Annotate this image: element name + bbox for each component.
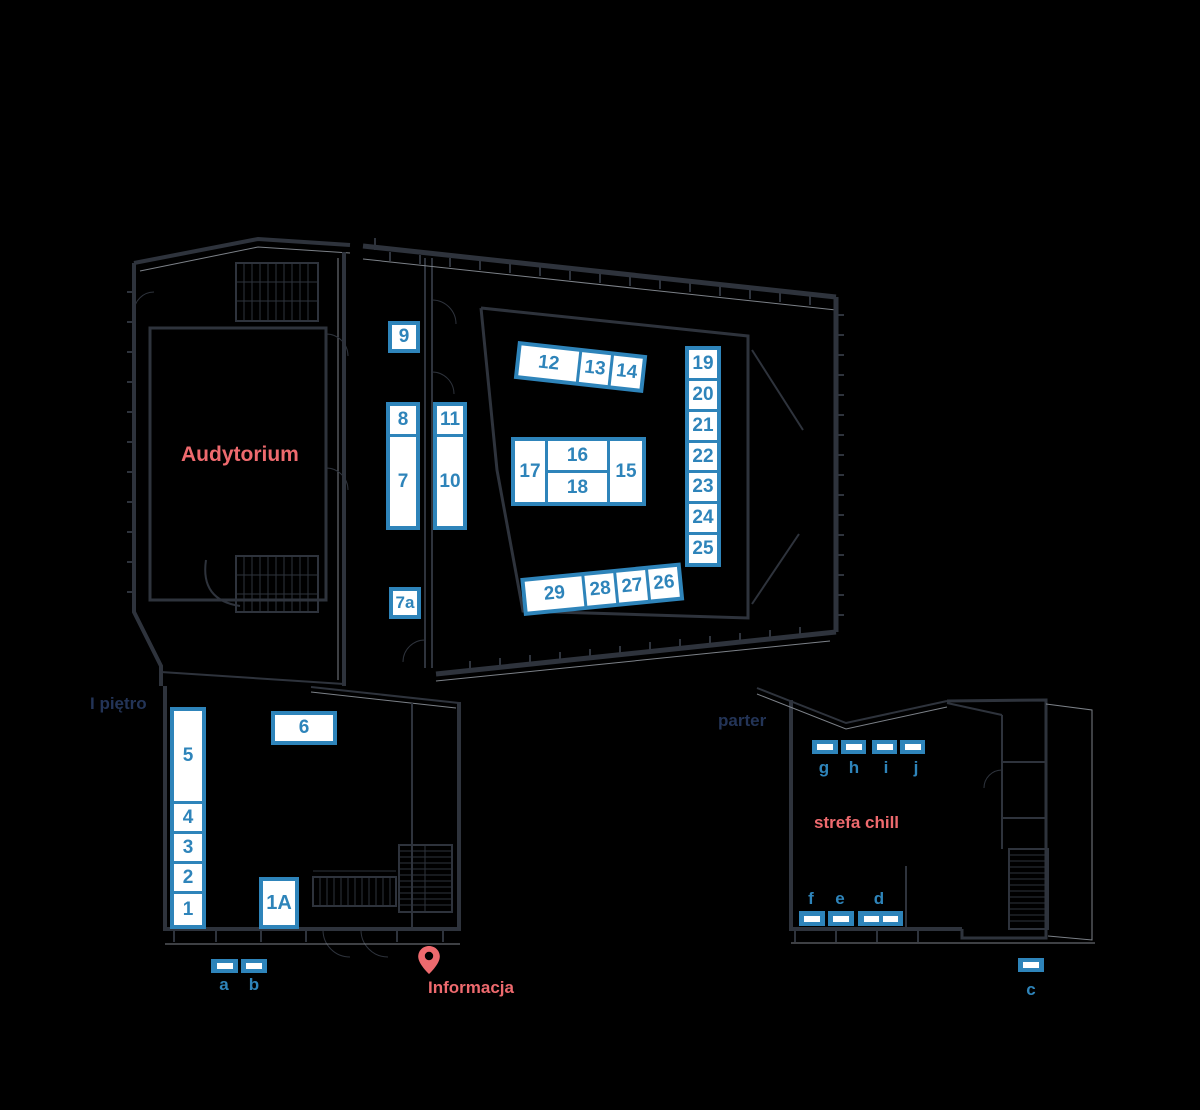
stand-3[interactable]: 3 xyxy=(174,834,202,861)
slot-window xyxy=(217,963,233,969)
stand-h-box[interactable] xyxy=(841,740,866,754)
stand-27[interactable]: 27 xyxy=(616,570,648,603)
slot-window xyxy=(846,744,862,750)
stand-11[interactable]: 11 xyxy=(437,406,463,434)
stand-j-label: j xyxy=(914,758,919,778)
stand-a-box[interactable] xyxy=(211,959,238,973)
floor-plan-drawing xyxy=(0,0,1200,1110)
stand-13[interactable]: 13 xyxy=(579,352,611,385)
stand-middle-column: 16 18 xyxy=(548,441,607,502)
stand-6[interactable]: 6 xyxy=(271,711,337,745)
stand-f-box[interactable] xyxy=(799,911,825,926)
slot-window xyxy=(864,916,879,922)
slot-window xyxy=(246,963,262,969)
stand-14[interactable]: 14 xyxy=(611,356,643,389)
slot-window xyxy=(833,916,849,922)
stand-d-label: d xyxy=(874,889,884,909)
stand-10[interactable]: 10 xyxy=(437,437,463,526)
slot-window xyxy=(877,744,893,750)
stand-b-box[interactable] xyxy=(241,959,267,973)
stand-b-label: b xyxy=(249,975,259,995)
stand-25[interactable]: 25 xyxy=(689,535,717,563)
stand-4[interactable]: 4 xyxy=(174,804,202,831)
slot-window xyxy=(804,916,820,922)
stand-12[interactable]: 12 xyxy=(518,345,579,381)
stand-23[interactable]: 23 xyxy=(689,473,717,501)
stand-c-label: c xyxy=(1026,980,1035,1000)
stand-a-label: a xyxy=(219,975,228,995)
stand-h-label: h xyxy=(849,758,859,778)
slot-window xyxy=(905,744,921,750)
stand-e-label: e xyxy=(835,889,844,909)
floor-plan-canvas: Audytorium I piętro parter strefa chill … xyxy=(0,0,1200,1110)
stand-column-11-10: 11 10 xyxy=(433,402,467,530)
information-label: Informacja xyxy=(428,978,514,998)
stand-16[interactable]: 16 xyxy=(548,441,607,470)
stand-22[interactable]: 22 xyxy=(689,443,717,471)
chill-zone-label: strefa chill xyxy=(814,813,899,833)
stand-1a[interactable]: 1A xyxy=(259,877,299,929)
stand-g-box[interactable] xyxy=(812,740,838,754)
stand-7a[interactable]: 7a xyxy=(389,587,421,619)
stand-2[interactable]: 2 xyxy=(174,864,202,891)
stand-19[interactable]: 19 xyxy=(689,350,717,378)
stand-d-box[interactable] xyxy=(858,911,903,926)
stand-20[interactable]: 20 xyxy=(689,381,717,409)
ground-floor-label: parter xyxy=(718,711,766,731)
stand-17[interactable]: 17 xyxy=(515,441,545,502)
information-pin-icon xyxy=(417,945,441,975)
stand-f-label: f xyxy=(808,889,814,909)
stand-26[interactable]: 26 xyxy=(648,567,680,600)
slot-window xyxy=(817,744,833,750)
stand-c-box[interactable] xyxy=(1018,958,1044,972)
audytorium-label: Audytorium xyxy=(181,443,299,467)
stand-block-15-18: 17 16 18 15 xyxy=(511,437,646,506)
stand-column-19-25: 19 20 21 22 23 24 25 xyxy=(685,346,721,567)
stand-g-label: g xyxy=(819,758,829,778)
stand-21[interactable]: 21 xyxy=(689,412,717,440)
stand-i-box[interactable] xyxy=(872,740,897,754)
stand-e-box[interactable] xyxy=(828,911,854,926)
stand-18[interactable]: 18 xyxy=(548,473,607,502)
stand-24[interactable]: 24 xyxy=(689,504,717,532)
stand-column-8-7: 8 7 xyxy=(386,402,420,530)
stand-i-label: i xyxy=(884,758,889,778)
stand-8[interactable]: 8 xyxy=(390,406,416,434)
stand-1[interactable]: 1 xyxy=(174,894,202,925)
stand-28[interactable]: 28 xyxy=(584,573,616,606)
stand-j-box[interactable] xyxy=(900,740,925,754)
stand-9[interactable]: 9 xyxy=(388,321,420,353)
stand-7[interactable]: 7 xyxy=(390,437,416,526)
stand-15[interactable]: 15 xyxy=(610,441,642,502)
slot-window xyxy=(1023,962,1039,968)
first-floor-label: I piętro xyxy=(90,694,147,714)
slot-window xyxy=(883,916,898,922)
stand-29[interactable]: 29 xyxy=(525,576,585,611)
stand-5[interactable]: 5 xyxy=(174,711,202,801)
stand-column-5-1: 5 4 3 2 1 xyxy=(170,707,206,929)
